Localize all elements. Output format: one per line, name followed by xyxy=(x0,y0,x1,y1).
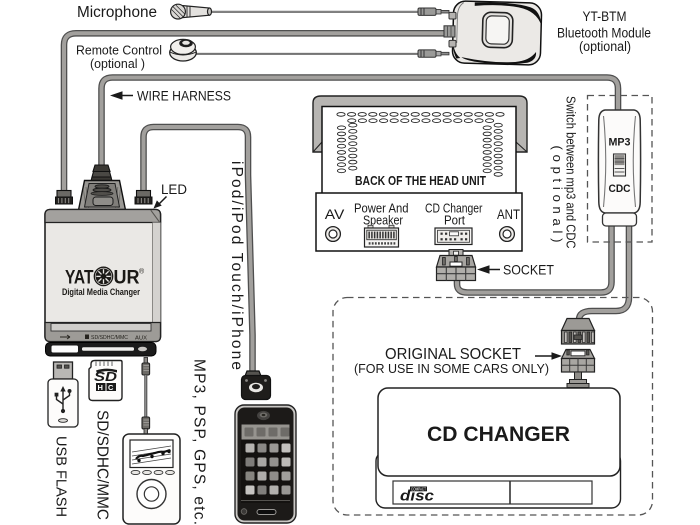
svg-text:AUX: AUX xyxy=(135,335,148,341)
svg-text:YT-BTM: YT-BTM xyxy=(583,9,627,24)
svg-text:SD/SDHC/MMC: SD/SDHC/MMC xyxy=(91,335,128,341)
svg-text:WIRE HARNESS: WIRE HARNESS xyxy=(137,88,231,104)
svg-text:(FOR USE IN SOME CARS ONLY): (FOR USE IN SOME CARS ONLY) xyxy=(354,361,549,376)
svg-text:CD CHANGER: CD CHANGER xyxy=(427,422,570,446)
svg-text:COMPACT: COMPACT xyxy=(411,487,426,492)
svg-text:(optional ): (optional ) xyxy=(90,56,145,71)
svg-text:C: C xyxy=(108,383,114,392)
svg-text:UR: UR xyxy=(114,268,140,289)
svg-text:YAT: YAT xyxy=(65,268,94,289)
svg-text:AV: AV xyxy=(325,206,345,222)
svg-text:Port: Port xyxy=(444,214,465,228)
svg-text:(optional): (optional) xyxy=(579,39,631,54)
svg-text:MP3, PSP, GPS, etc.: MP3, PSP, GPS, etc. xyxy=(191,359,208,525)
svg-text:USB FLASH: USB FLASH xyxy=(53,436,70,517)
svg-text:H: H xyxy=(98,383,103,392)
svg-text:Microphone: Microphone xyxy=(77,4,157,21)
svg-text:Digital Media Changer: Digital Media Changer xyxy=(62,287,140,298)
svg-text:BACK OF THE HEAD UNIT: BACK OF THE HEAD UNIT xyxy=(355,174,486,188)
svg-text:®: ® xyxy=(139,268,145,276)
svg-text:ANT: ANT xyxy=(497,206,520,222)
svg-text:SOCKET: SOCKET xyxy=(503,262,554,278)
svg-text:SD/SDHC/MMC: SD/SDHC/MMC xyxy=(94,410,111,520)
svg-text:MP3: MP3 xyxy=(609,137,631,149)
svg-text:LED: LED xyxy=(161,181,187,197)
svg-text:CDC: CDC xyxy=(609,183,631,195)
